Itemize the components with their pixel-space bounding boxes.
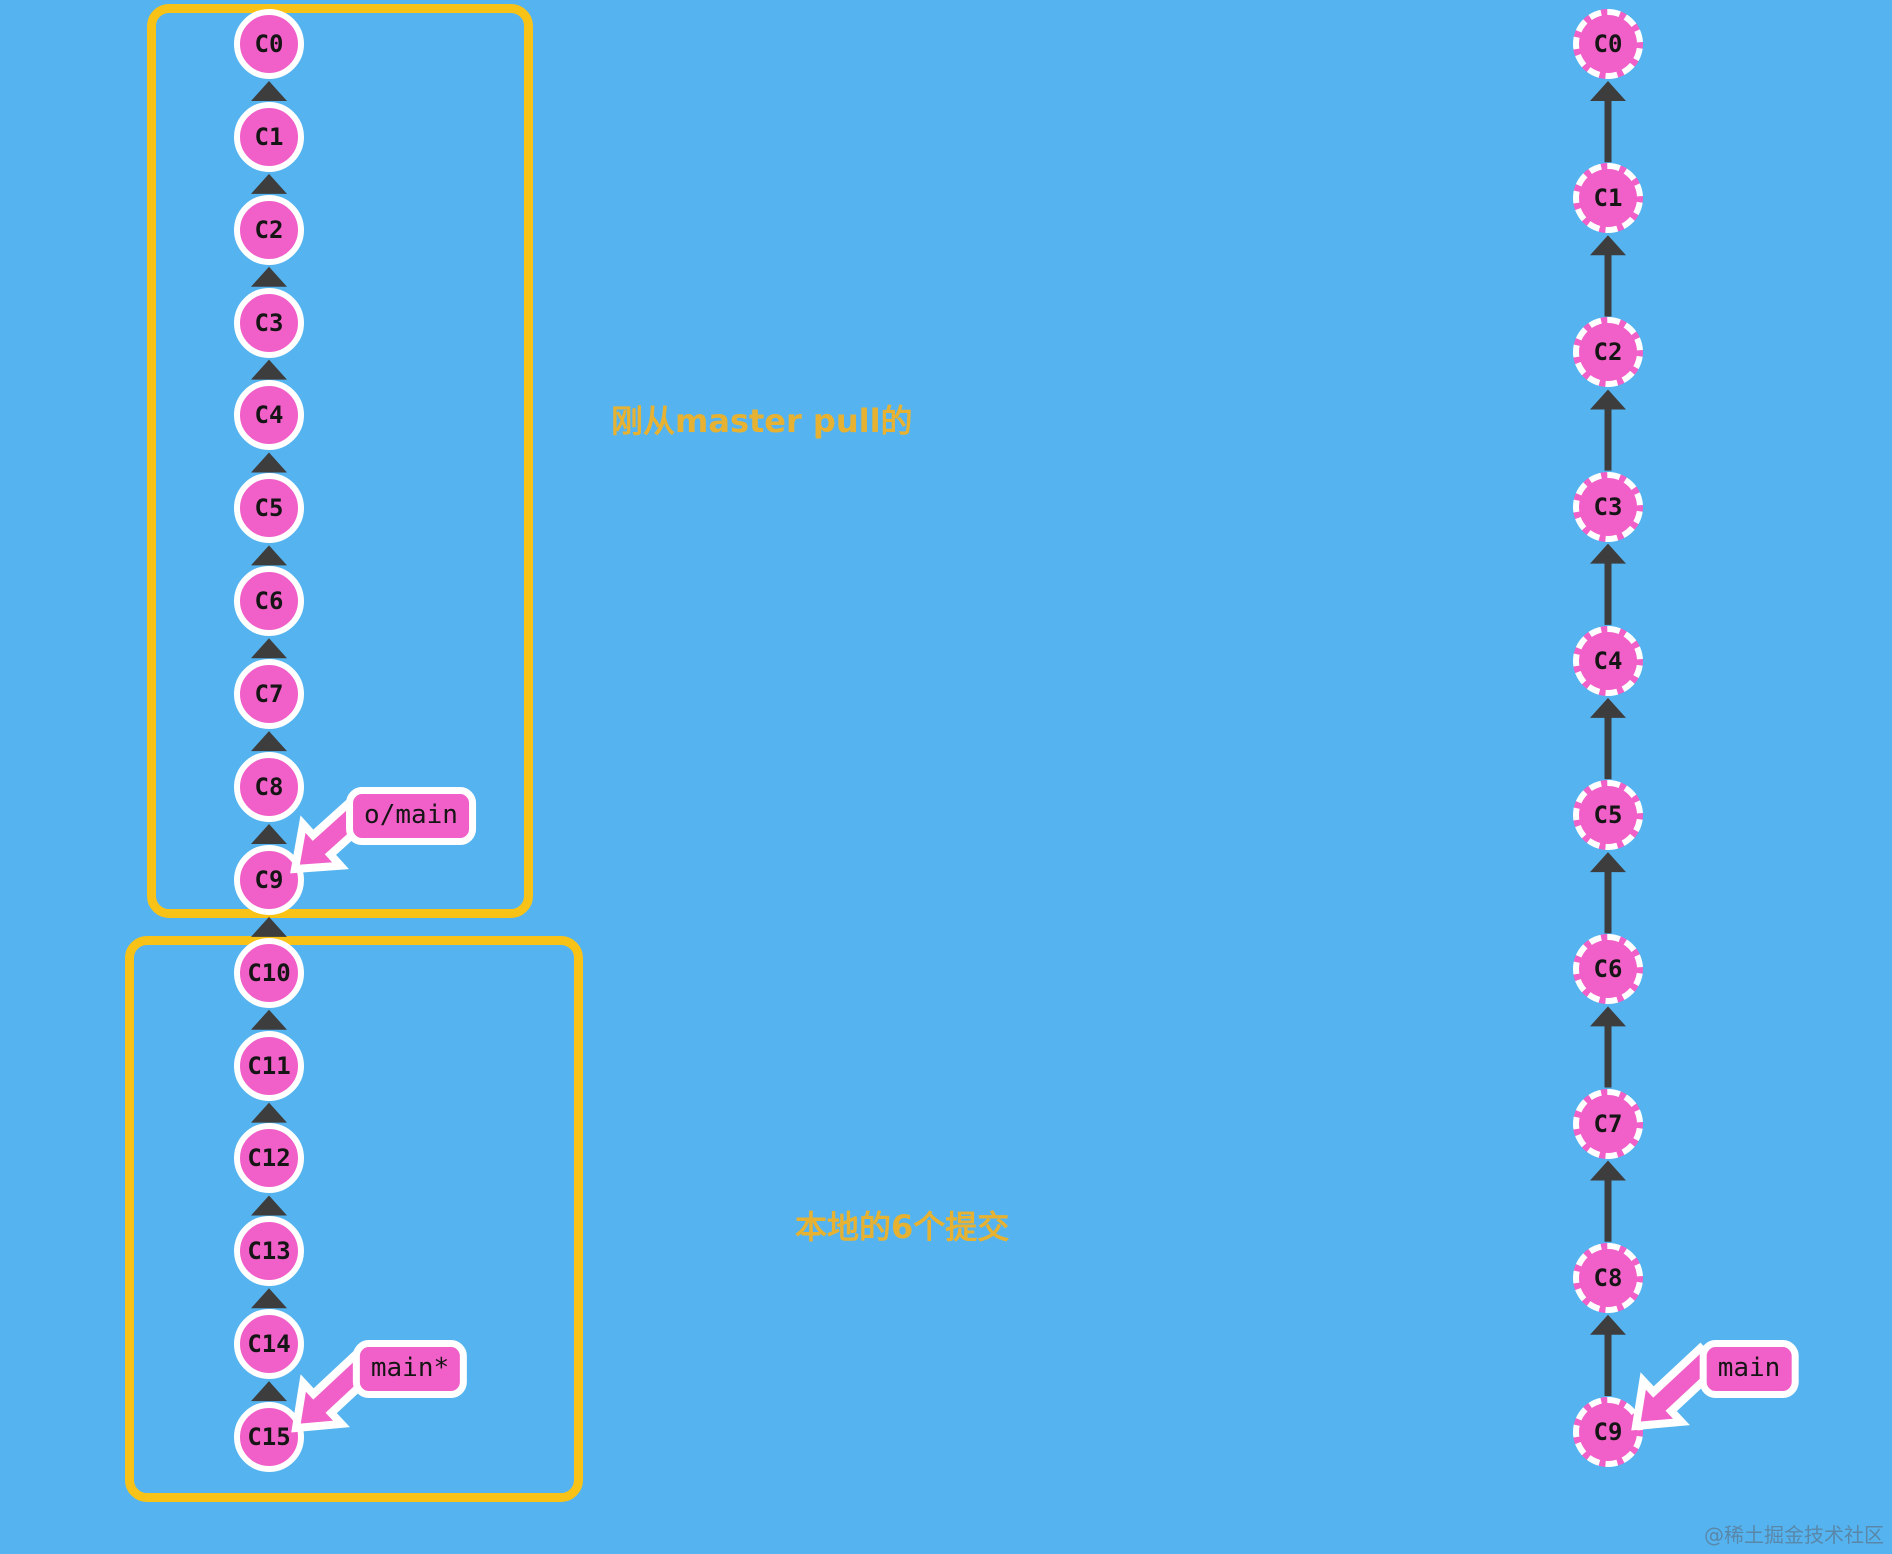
commit-label: C13 <box>247 1239 290 1263</box>
commit-node-c8: C8 <box>1573 1243 1643 1313</box>
commit-node-c12: C12 <box>234 1123 304 1193</box>
commit-node-c4: C4 <box>234 380 304 450</box>
commit-label: C2 <box>255 218 284 242</box>
commit-node-c3: C3 <box>234 288 304 358</box>
commit-node-c5: C5 <box>1573 780 1643 850</box>
commit-node-c10: C10 <box>234 938 304 1008</box>
commit-label: C7 <box>255 682 284 706</box>
local-commits-highlight-box <box>125 936 583 1502</box>
up-arrowhead-icon <box>1590 1315 1626 1335</box>
commit-label: C3 <box>1594 495 1623 519</box>
commit-label: C3 <box>255 311 284 335</box>
commit-node-c2: C2 <box>234 195 304 265</box>
up-arrowhead-icon <box>1590 235 1626 255</box>
commit-label: C8 <box>255 775 284 799</box>
commit-node-c0: C0 <box>234 9 304 79</box>
commit-node-c11: C11 <box>234 1031 304 1101</box>
branch-badge-main-star: main* <box>353 1340 467 1398</box>
commit-node-c8: C8 <box>234 752 304 822</box>
commit-label: C9 <box>1594 1420 1623 1444</box>
commit-label: C4 <box>255 403 284 427</box>
commit-node-c9: C9 <box>1573 1397 1643 1467</box>
commit-label: C7 <box>1594 1112 1623 1136</box>
commit-node-c5: C5 <box>234 473 304 543</box>
commit-label: C2 <box>1594 340 1623 364</box>
branch-badge-o-main: o/main <box>346 787 476 845</box>
commit-label: C1 <box>1594 186 1623 210</box>
up-arrowhead-icon <box>1590 389 1626 409</box>
annotation-pulled-from-master: 刚从master pull的 <box>611 404 913 439</box>
commit-label: C0 <box>255 32 284 56</box>
commit-node-c15: C15 <box>234 1402 304 1472</box>
branch-badge-label: main* <box>371 1353 449 1383</box>
commit-node-c13: C13 <box>234 1216 304 1286</box>
watermark-text: @稀土掘金技术社区 <box>1704 1519 1884 1548</box>
commit-node-c6: C6 <box>1573 934 1643 1004</box>
up-arrowhead-icon <box>1590 544 1626 564</box>
commit-label: C10 <box>247 961 290 985</box>
commit-node-c7: C7 <box>234 659 304 729</box>
up-arrowhead-icon <box>1590 81 1626 101</box>
branch-badge-main: main <box>1700 1340 1799 1398</box>
branch-badge-label: main <box>1718 1353 1781 1383</box>
commit-label: C0 <box>1594 32 1623 56</box>
commit-label: C6 <box>1594 957 1623 981</box>
branch-badge-label: o/main <box>364 800 458 830</box>
commit-node-c4: C4 <box>1573 626 1643 696</box>
commit-label: C15 <box>247 1425 290 1449</box>
commit-node-c3: C3 <box>1573 472 1643 542</box>
commit-node-c6: C6 <box>234 566 304 636</box>
commit-node-c14: C14 <box>234 1309 304 1379</box>
git-commit-diagram: C0C1C2C3C4C5C6C7C8C9C10C11C12C13C14C15 C… <box>0 0 1892 1554</box>
up-arrowhead-icon <box>1590 1161 1626 1181</box>
up-arrowhead-icon <box>1590 852 1626 872</box>
commit-label: C8 <box>1594 1266 1623 1290</box>
up-arrowhead-icon <box>1590 698 1626 718</box>
commit-label: C12 <box>247 1146 290 1170</box>
commit-node-c0: C0 <box>1573 9 1643 79</box>
commit-node-c2: C2 <box>1573 317 1643 387</box>
commit-label: C5 <box>1594 803 1623 827</box>
commit-label: C6 <box>255 589 284 613</box>
commit-label: C11 <box>247 1054 290 1078</box>
commit-label: C4 <box>1594 649 1623 673</box>
commit-node-c9: C9 <box>234 845 304 915</box>
pulled-commits-highlight-box <box>147 4 533 918</box>
commit-node-c1: C1 <box>234 102 304 172</box>
commit-label: C5 <box>255 496 284 520</box>
up-arrowhead-icon <box>251 917 287 937</box>
commit-node-c7: C7 <box>1573 1089 1643 1159</box>
annotation-local-commits: 本地的6个提交 <box>795 1210 1009 1245</box>
up-arrowhead-icon <box>1590 1006 1626 1026</box>
commit-node-c1: C1 <box>1573 163 1643 233</box>
commit-label: C14 <box>247 1332 290 1356</box>
commit-label: C1 <box>255 125 284 149</box>
commit-label: C9 <box>255 868 284 892</box>
